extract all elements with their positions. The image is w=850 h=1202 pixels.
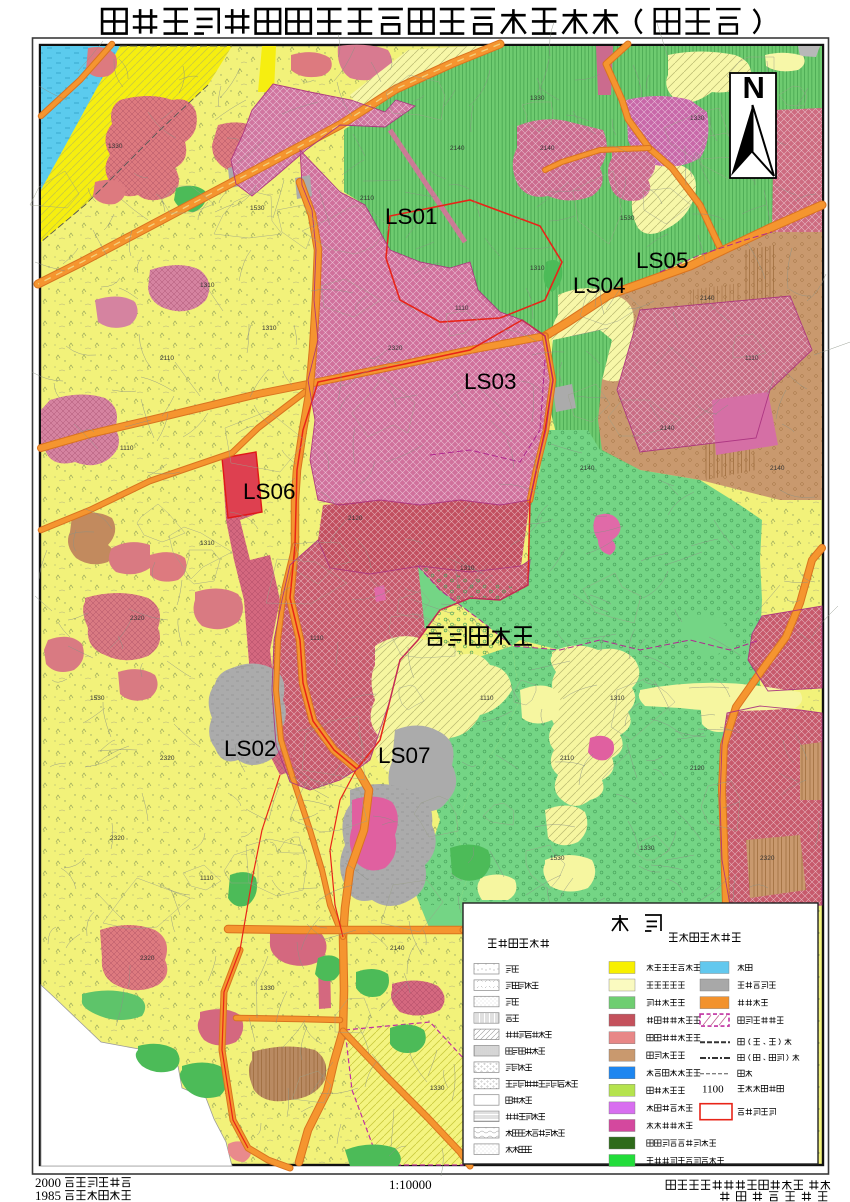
svg-text:N: N	[743, 70, 765, 105]
svg-text:1:10000: 1:10000	[389, 1177, 432, 1192]
svg-text:2320: 2320	[130, 615, 145, 622]
svg-text:1110: 1110	[120, 445, 134, 452]
svg-text:1330: 1330	[690, 115, 705, 122]
svg-text:1110: 1110	[455, 305, 469, 312]
svg-text:2110: 2110	[360, 195, 374, 202]
svg-text:2140: 2140	[660, 425, 675, 432]
svg-text:1330: 1330	[530, 95, 545, 102]
svg-text:1985: 1985	[35, 1188, 61, 1202]
svg-text:2320: 2320	[760, 855, 775, 862]
svg-text:2140: 2140	[700, 295, 715, 302]
svg-text:1330: 1330	[430, 1085, 445, 1092]
svg-text:2140: 2140	[450, 145, 465, 152]
svg-text:2140: 2140	[770, 465, 785, 472]
svg-text:2320: 2320	[388, 345, 403, 352]
svg-text:LS04: LS04	[573, 273, 626, 298]
svg-text:1530: 1530	[90, 695, 105, 702]
svg-text:2320: 2320	[110, 835, 125, 842]
svg-text:1330: 1330	[640, 845, 655, 852]
svg-text:2320: 2320	[160, 755, 175, 762]
svg-text:1530: 1530	[620, 215, 635, 222]
svg-text:2110: 2110	[560, 755, 574, 762]
svg-text:2320: 2320	[140, 955, 155, 962]
svg-text:1310: 1310	[460, 565, 475, 572]
svg-text:LS03: LS03	[464, 369, 517, 394]
svg-text:1310: 1310	[200, 540, 215, 547]
svg-text:1310: 1310	[610, 695, 625, 702]
svg-text:1530: 1530	[250, 205, 265, 212]
svg-text:1110: 1110	[745, 355, 759, 362]
svg-text:1530: 1530	[550, 855, 565, 862]
svg-text:2110: 2110	[160, 355, 174, 362]
svg-text:1330: 1330	[260, 985, 275, 992]
svg-text:1110: 1110	[480, 695, 494, 702]
svg-text:LS05: LS05	[636, 248, 689, 273]
svg-text:1310: 1310	[530, 265, 545, 272]
svg-text:1110: 1110	[200, 875, 214, 882]
svg-text:LS02: LS02	[224, 736, 277, 761]
svg-text:LS06: LS06	[243, 479, 296, 504]
svg-text:1330: 1330	[108, 143, 123, 150]
svg-text:2120: 2120	[690, 765, 705, 772]
svg-text:2140: 2140	[390, 945, 405, 952]
svg-text:LS01: LS01	[385, 204, 438, 229]
svg-text:2140: 2140	[580, 465, 595, 472]
svg-text:1310: 1310	[262, 325, 277, 332]
svg-text:1110: 1110	[310, 635, 324, 642]
svg-text:LS07: LS07	[378, 743, 431, 768]
svg-text:1100: 1100	[702, 1084, 724, 1096]
svg-text:2140: 2140	[540, 145, 555, 152]
svg-text:2120: 2120	[348, 515, 363, 522]
svg-text:1310: 1310	[200, 282, 215, 289]
